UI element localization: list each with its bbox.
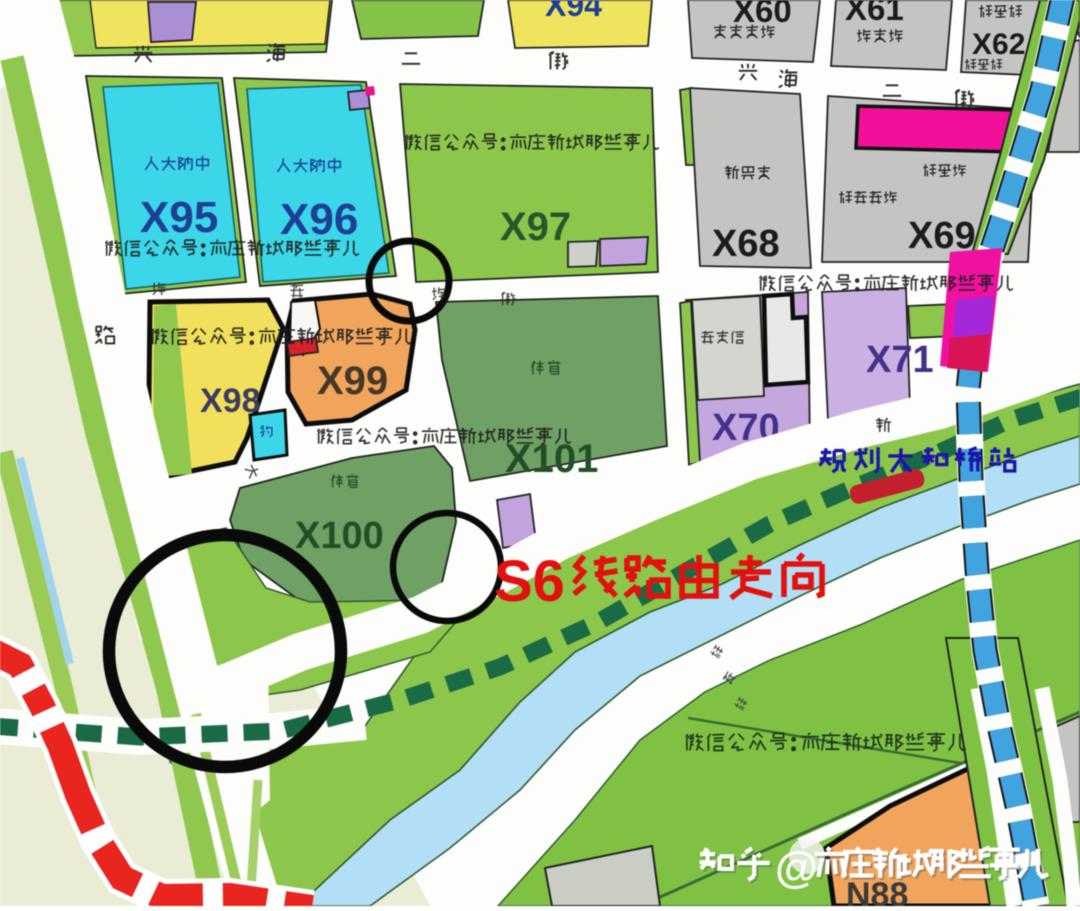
svg-text:X60: X60 — [733, 0, 792, 29]
svg-text:X68: X68 — [712, 223, 780, 265]
svg-text:X99: X99 — [317, 359, 388, 403]
svg-text:@: @ — [775, 843, 818, 892]
svg-text:X69: X69 — [908, 215, 976, 257]
svg-text:N88: N88 — [846, 876, 908, 906]
svg-text:X94: X94 — [545, 0, 602, 23]
svg-text:X62: X62 — [972, 28, 1025, 61]
svg-text:S6: S6 — [494, 549, 565, 614]
svg-text:X100: X100 — [295, 515, 384, 557]
svg-text:X71: X71 — [866, 339, 934, 381]
svg-text:X61: X61 — [845, 0, 904, 27]
svg-text:X97: X97 — [500, 205, 571, 249]
svg-text:X96: X96 — [280, 195, 358, 244]
svg-text:X95: X95 — [140, 193, 218, 242]
